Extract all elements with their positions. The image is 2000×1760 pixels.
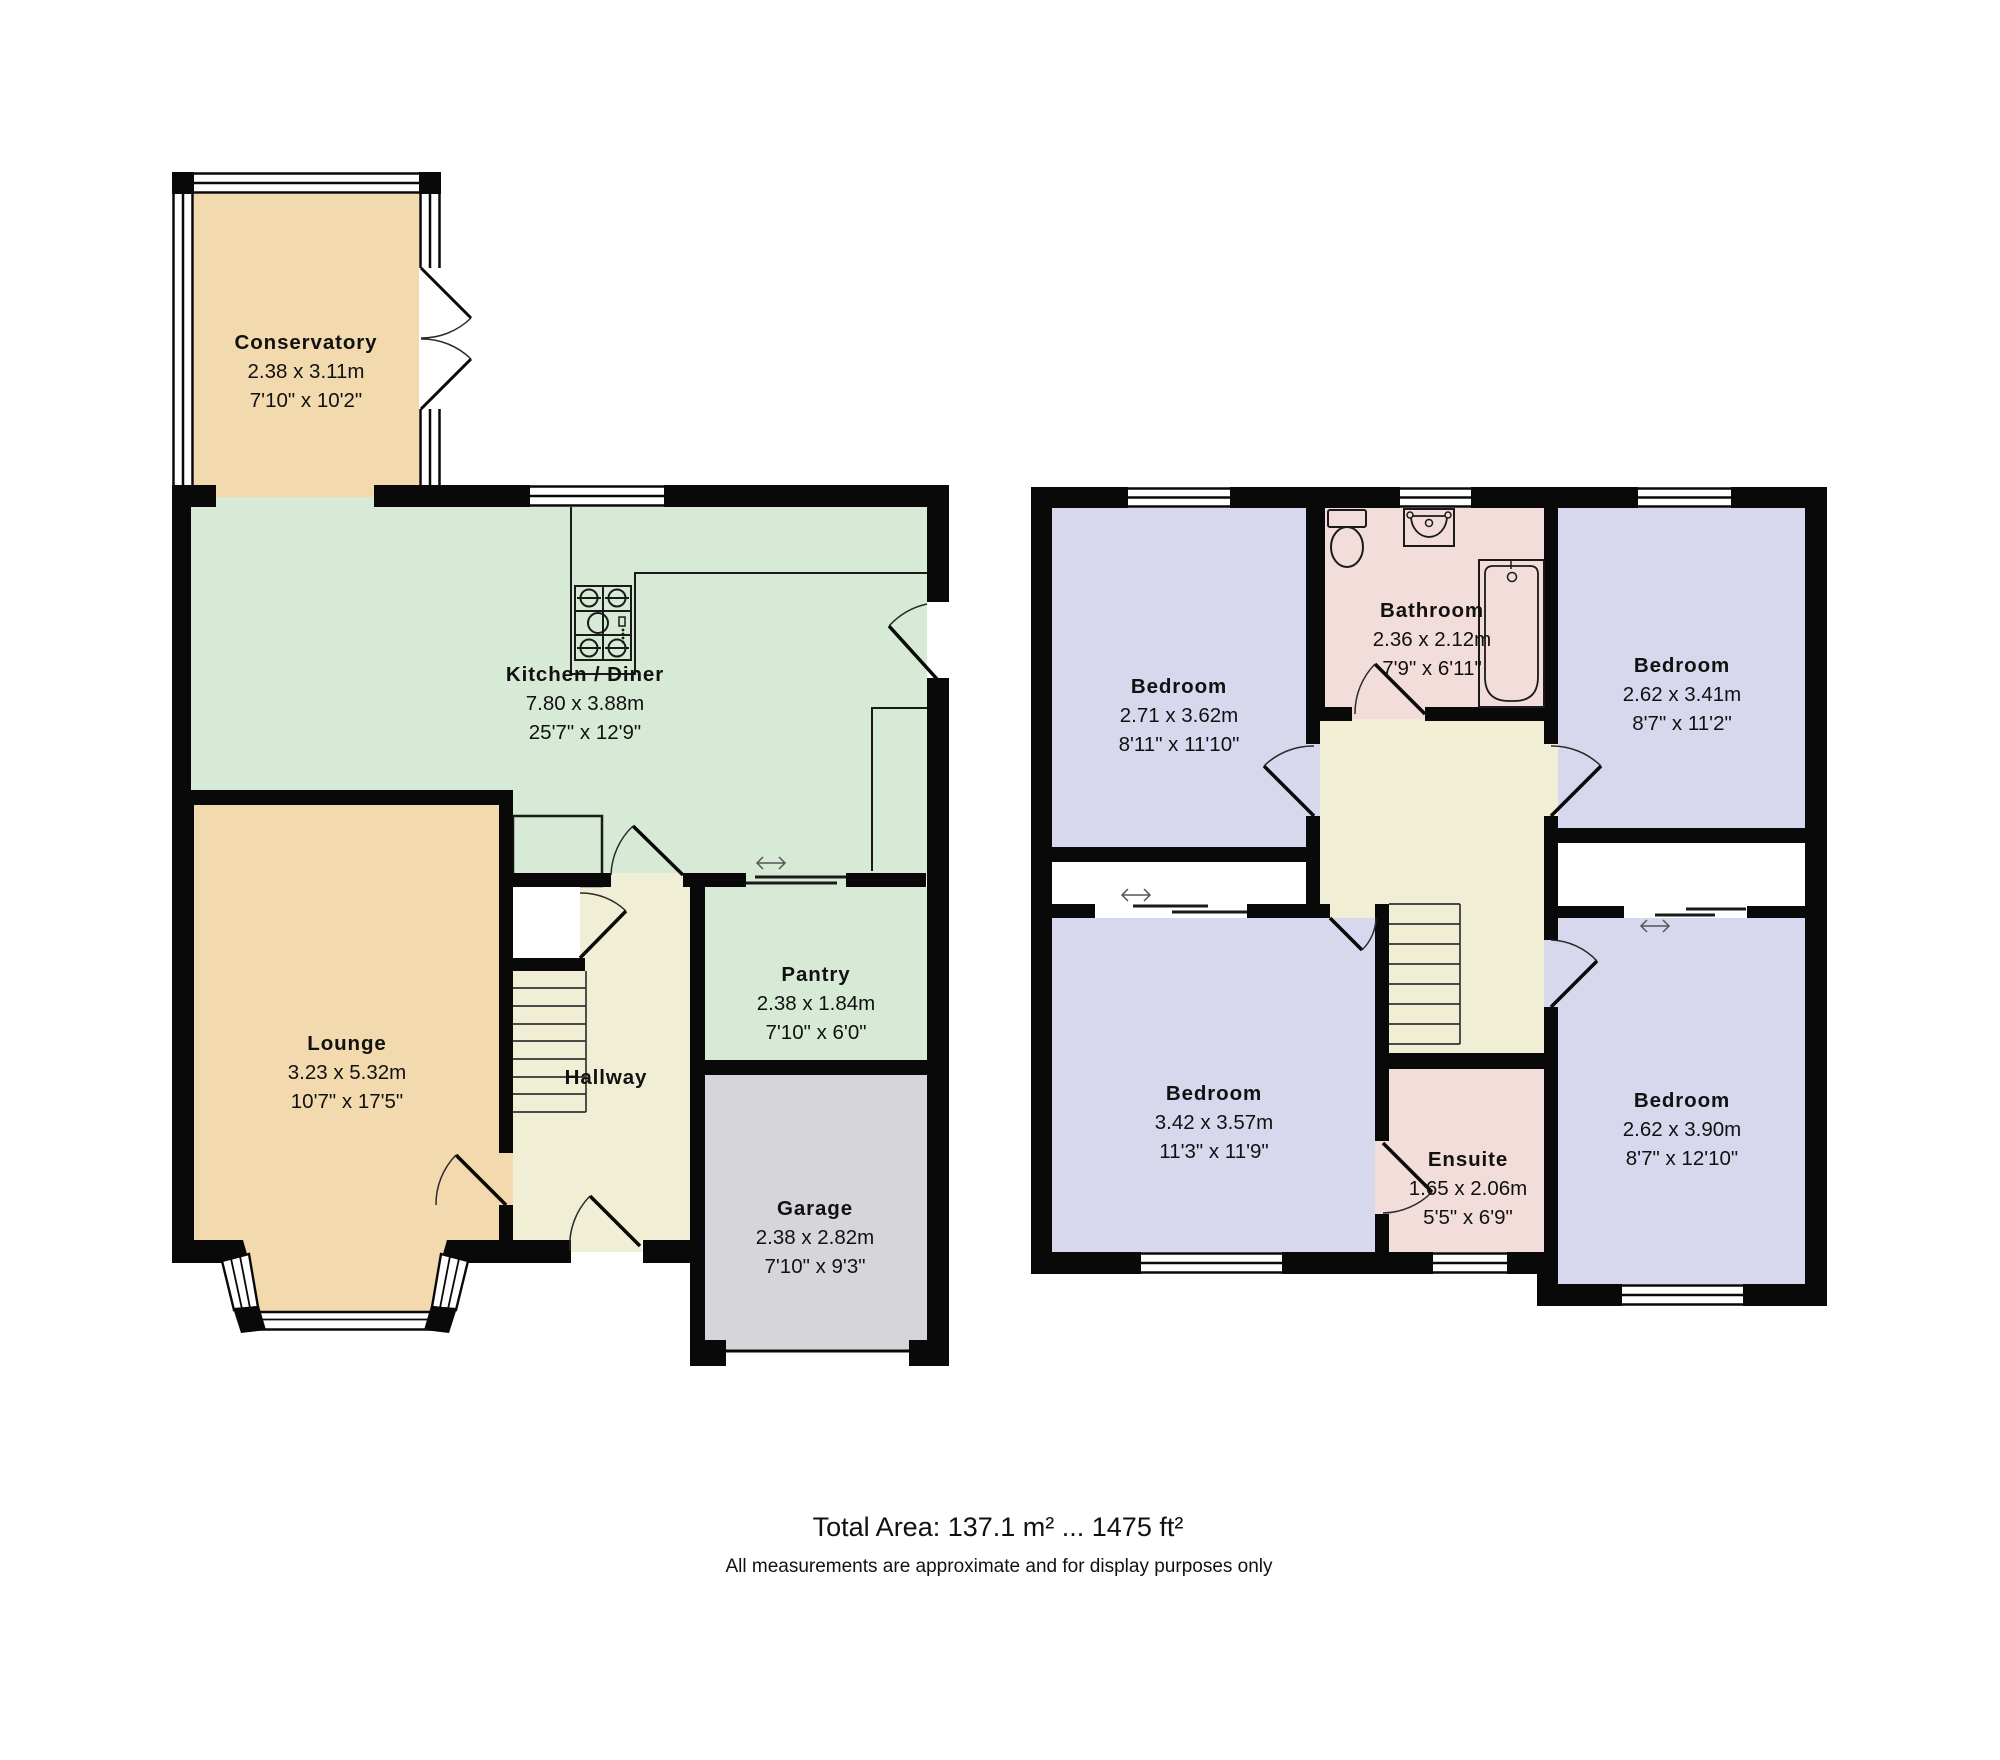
svg-text:7'10" x 10'2": 7'10" x 10'2": [250, 389, 362, 412]
svg-text:10'7" x 17'5": 10'7" x 17'5": [291, 1090, 403, 1113]
svg-text:Bathroom: Bathroom: [1380, 599, 1484, 622]
svg-text:Total Area: 137.1 m² ... 1475: Total Area: 137.1 m² ... 1475 ft²: [813, 1512, 1184, 1542]
svg-text:2.38 x 3.11m: 2.38 x 3.11m: [248, 360, 365, 383]
svg-text:Bedroom: Bedroom: [1634, 654, 1730, 677]
svg-text:2.38 x 2.82m: 2.38 x 2.82m: [756, 1226, 875, 1249]
svg-text:7'10" x 6'0": 7'10" x 6'0": [765, 1021, 866, 1044]
svg-text:5'5" x 6'9": 5'5" x 6'9": [1423, 1206, 1513, 1229]
svg-text:Kitchen / Diner: Kitchen / Diner: [506, 663, 664, 686]
svg-text:Ensuite: Ensuite: [1428, 1148, 1508, 1171]
svg-text:2.62 x 3.41m: 2.62 x 3.41m: [1623, 683, 1742, 706]
svg-text:25'7" x 12'9": 25'7" x 12'9": [529, 721, 641, 744]
svg-text:Bedroom: Bedroom: [1166, 1082, 1262, 1105]
svg-text:All measurements are approxima: All measurements are approximate and for…: [725, 1556, 1273, 1577]
svg-text:2.62 x 3.90m: 2.62 x 3.90m: [1623, 1118, 1742, 1141]
svg-text:3.42 x 3.57m: 3.42 x 3.57m: [1155, 1111, 1274, 1134]
svg-text:Bedroom: Bedroom: [1131, 675, 1227, 698]
svg-text:Garage: Garage: [777, 1197, 853, 1220]
svg-text:3.23 x 5.32m: 3.23 x 5.32m: [288, 1061, 407, 1084]
svg-text:2.36 x 2.12m: 2.36 x 2.12m: [1373, 628, 1492, 651]
svg-text:Pantry: Pantry: [781, 963, 850, 986]
svg-text:8'7" x 11'2": 8'7" x 11'2": [1632, 712, 1732, 735]
svg-text:7'9" x 6'11": 7'9" x 6'11": [1382, 657, 1482, 680]
svg-text:8'7" x 12'10": 8'7" x 12'10": [1626, 1147, 1738, 1170]
svg-text:Conservatory: Conservatory: [235, 331, 378, 354]
svg-text:Bedroom: Bedroom: [1634, 1089, 1730, 1112]
svg-text:11'3" x 11'9": 11'3" x 11'9": [1159, 1140, 1268, 1163]
svg-text:7'10" x 9'3": 7'10" x 9'3": [764, 1255, 865, 1278]
svg-text:1.65 x 2.06m: 1.65 x 2.06m: [1409, 1177, 1528, 1200]
svg-text:Lounge: Lounge: [307, 1032, 386, 1055]
svg-text:7.80 x 3.88m: 7.80 x 3.88m: [526, 692, 645, 715]
svg-text:Hallway: Hallway: [565, 1066, 648, 1089]
svg-text:8'11" x 11'10": 8'11" x 11'10": [1119, 733, 1240, 756]
svg-text:2.71 x 3.62m: 2.71 x 3.62m: [1120, 704, 1239, 727]
svg-text:2.38 x 1.84m: 2.38 x 1.84m: [757, 992, 876, 1015]
